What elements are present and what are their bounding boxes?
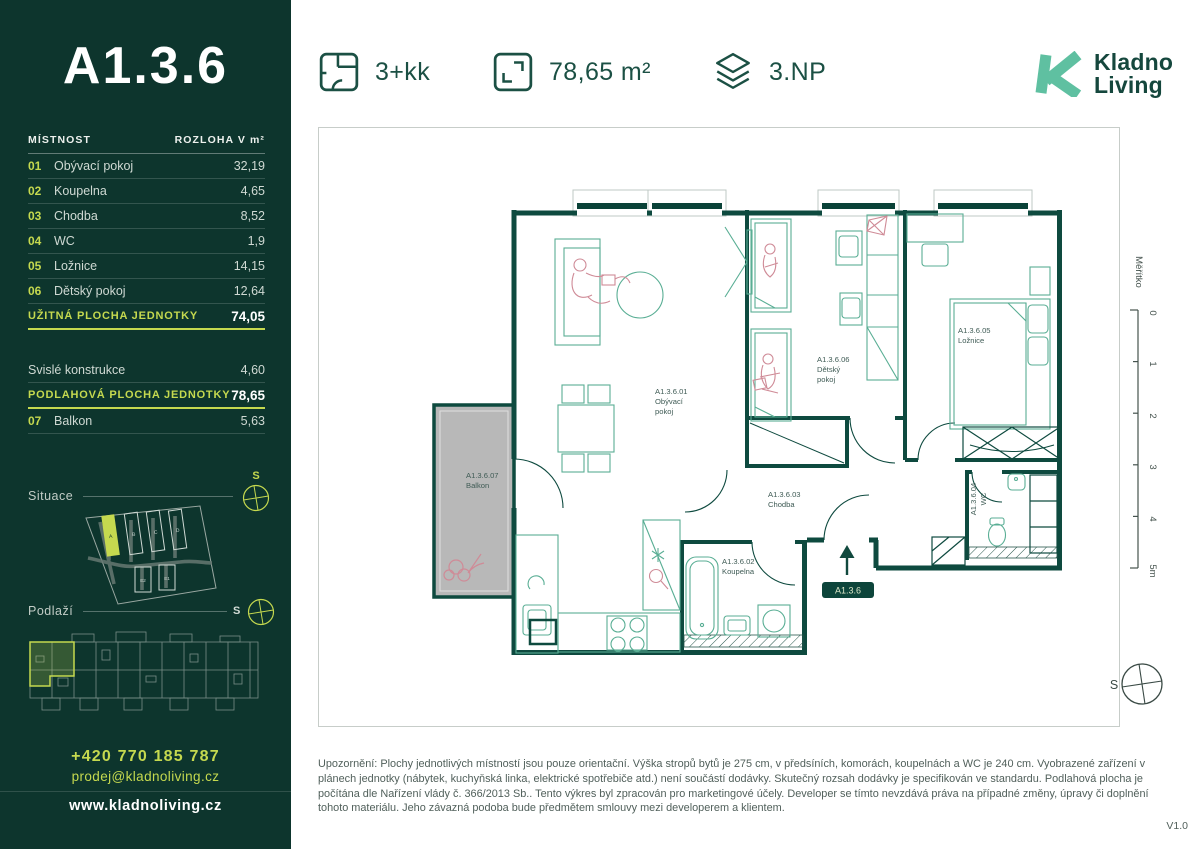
balcony-row: 07 Balkon 5,63 [28, 409, 265, 434]
room-area: 4,65 [241, 184, 265, 198]
scale-tick: 4 [1147, 516, 1158, 521]
floorplan-icon [318, 51, 360, 93]
room-label-code: A1.3.6.03 [768, 490, 801, 499]
disclaimer-text: Upozornění: Plochy jednotlivých místnost… [318, 757, 1156, 816]
divider [83, 496, 233, 497]
scale-ruler: Měřítko 0 1 2 3 4 5m [1130, 256, 1158, 578]
child-figure-1 [763, 244, 778, 277]
building-label: E1 [164, 576, 170, 581]
table-row: 01 Obývací pokoj 32,19 [28, 154, 265, 179]
room-name: Dětský pokoj [54, 284, 234, 298]
table-row: 04 WC 1,9 [28, 229, 265, 254]
brand-logo: Kladno Living [1034, 51, 1173, 97]
phone-number[interactable]: +420 770 185 787 [0, 748, 291, 766]
room-label-code: A1.3.6.07 [466, 471, 499, 480]
door-arcs [514, 418, 1002, 585]
area-icon [492, 51, 534, 93]
sidebar: A1.3.6 MÍSTNOST ROZLOHA V m² 01 Obývací … [0, 0, 291, 849]
compass-north-label: S [252, 470, 259, 482]
usable-area-label: UŽITNÁ PLOCHA JEDNOTKY [28, 310, 231, 322]
floor-icon [712, 51, 754, 93]
col-area: ROZLOHA V m² [175, 134, 265, 146]
unit-title: A1.3.6 [0, 36, 291, 96]
room-area: 8,52 [241, 209, 265, 223]
stat-layout: 3+kk [318, 50, 430, 94]
divider [83, 611, 227, 612]
room-num: 04 [28, 234, 54, 248]
brand-name: Kladno Living [1094, 51, 1173, 97]
furniture [516, 214, 1050, 653]
entrance-badge-label: A1.3.6 [835, 586, 861, 596]
figure-drawings [572, 216, 887, 589]
table-row: 02 Koupelna 4,65 [28, 179, 265, 204]
floor-area-label: PODLAHOVÁ PLOCHA JEDNOTKY [28, 389, 231, 401]
room-num: 01 [28, 159, 54, 173]
room-label: Balkon [466, 481, 489, 490]
divider [0, 791, 291, 792]
floor-value: 3.NP [769, 58, 826, 87]
podlazi-label: Podlaží [28, 604, 73, 618]
table-row: 03 Chodba 8,52 [28, 204, 265, 229]
scale-tick: 5m [1147, 564, 1158, 577]
room-name: WC [54, 234, 248, 248]
compass-north-label: S [1110, 678, 1118, 692]
magnifier-drawing [650, 570, 669, 590]
room-label-code: A1.3.6.05 [958, 326, 991, 335]
stat-floor: 3.NP [712, 50, 826, 94]
building-label: E2 [140, 578, 146, 583]
area-value: 78,65 m² [549, 58, 651, 87]
room-name: Chodba [54, 209, 241, 223]
room-num: 06 [28, 284, 54, 298]
podlazi-compass [246, 597, 276, 627]
room-name: Ložnice [54, 259, 234, 273]
floor-area-value: 78,65 [231, 388, 265, 403]
vertical-structures-value: 4,60 [241, 363, 265, 377]
building-label: B [132, 532, 137, 538]
room-area: 1,9 [248, 234, 265, 248]
kladno-living-logo-icon [1034, 51, 1082, 97]
layout-value: 3+kk [375, 58, 430, 87]
page: A1.3.6 MÍSTNOST ROZLOHA V m² 01 Obývací … [0, 0, 1200, 849]
website-link[interactable]: www.kladnoliving.cz [0, 798, 291, 814]
brand-line1: Kladno [1094, 51, 1173, 74]
room-table-header: MÍSTNOST ROZLOHA V m² [28, 134, 265, 154]
situace-label: Situace [28, 489, 73, 503]
room-label: Chodba [768, 500, 795, 509]
room-label-code: A1.3.6.04 [969, 483, 978, 516]
scale-tick: 2 [1147, 413, 1158, 418]
building-label: D [176, 528, 181, 534]
scale-tick: 1 [1147, 361, 1158, 366]
vertical-structures-row: Svislé konstrukce 4,60 [28, 358, 265, 383]
room-area: 5,63 [241, 414, 265, 428]
floorplan-drawing: A1.3.6.01 Obývací pokoj A1.3.6.06 Dětský… [318, 127, 1170, 731]
floor-overview [24, 626, 268, 722]
entrance-marker: A1.3.6 [822, 545, 874, 598]
table-row: 06 Dětský pokoj 12,64 [28, 279, 265, 304]
room-num: 07 [28, 414, 54, 428]
room-area: 32,19 [234, 159, 265, 173]
room-num: 05 [28, 259, 54, 273]
closet-diagonal [750, 423, 844, 463]
usable-area-row: UŽITNÁ PLOCHA JEDNOTKY 74,05 [28, 304, 265, 330]
site-map: A B C D E2 E1 [78, 502, 234, 606]
room-num: 02 [28, 184, 54, 198]
compass-north-label: S [233, 605, 240, 617]
room-name: Balkon [54, 414, 241, 428]
room-label: WC [979, 492, 988, 505]
room-area: 12,64 [234, 284, 265, 298]
plan-compass: S [1110, 664, 1162, 704]
room-label: Obývací [655, 397, 684, 406]
room-name: Obývací pokoj [54, 159, 234, 173]
email-link[interactable]: prodej@kladnoliving.cz [0, 769, 291, 784]
room-num: 03 [28, 209, 54, 223]
room-label-code: A1.3.6.02 [722, 557, 755, 566]
scale-label: Měřítko [1133, 256, 1144, 288]
table-row: 05 Ložnice 14,15 [28, 254, 265, 279]
brand-line2: Living [1094, 74, 1173, 97]
room-table: MÍSTNOST ROZLOHA V m² 01 Obývací pokoj 3… [28, 134, 265, 434]
room-label: pokoj [655, 407, 673, 416]
room-label-code: A1.3.6.01 [655, 387, 688, 396]
room-label-code: A1.3.6.06 [817, 355, 850, 364]
situace-header: Situace [28, 489, 233, 503]
podlazi-header: Podlaží [28, 604, 227, 618]
room-label: pokoj [817, 375, 835, 384]
child-figure-2 [753, 354, 780, 393]
building-label: C [154, 530, 159, 536]
room-labels: A1.3.6.01 Obývací pokoj A1.3.6.06 Dětský… [466, 326, 991, 576]
stat-area: 78,65 m² [492, 50, 651, 94]
situace-compass: S [238, 466, 274, 516]
scale-tick: 0 [1147, 310, 1158, 315]
room-label: Koupelna [722, 567, 755, 576]
floor-area-row: PODLAHOVÁ PLOCHA JEDNOTKY 78,65 [28, 383, 265, 409]
room-label: Dětský [817, 365, 840, 374]
room-name: Koupelna [54, 184, 241, 198]
version-label: V1.0 [1166, 820, 1188, 832]
room-area: 14,15 [234, 259, 265, 273]
vertical-structures-label: Svislé konstrukce [28, 363, 241, 377]
usable-area-value: 74,05 [231, 309, 265, 324]
room-label: Ložnice [958, 336, 984, 345]
balcony-area [434, 405, 514, 597]
scale-tick: 3 [1147, 464, 1158, 469]
col-room: MÍSTNOST [28, 134, 91, 146]
